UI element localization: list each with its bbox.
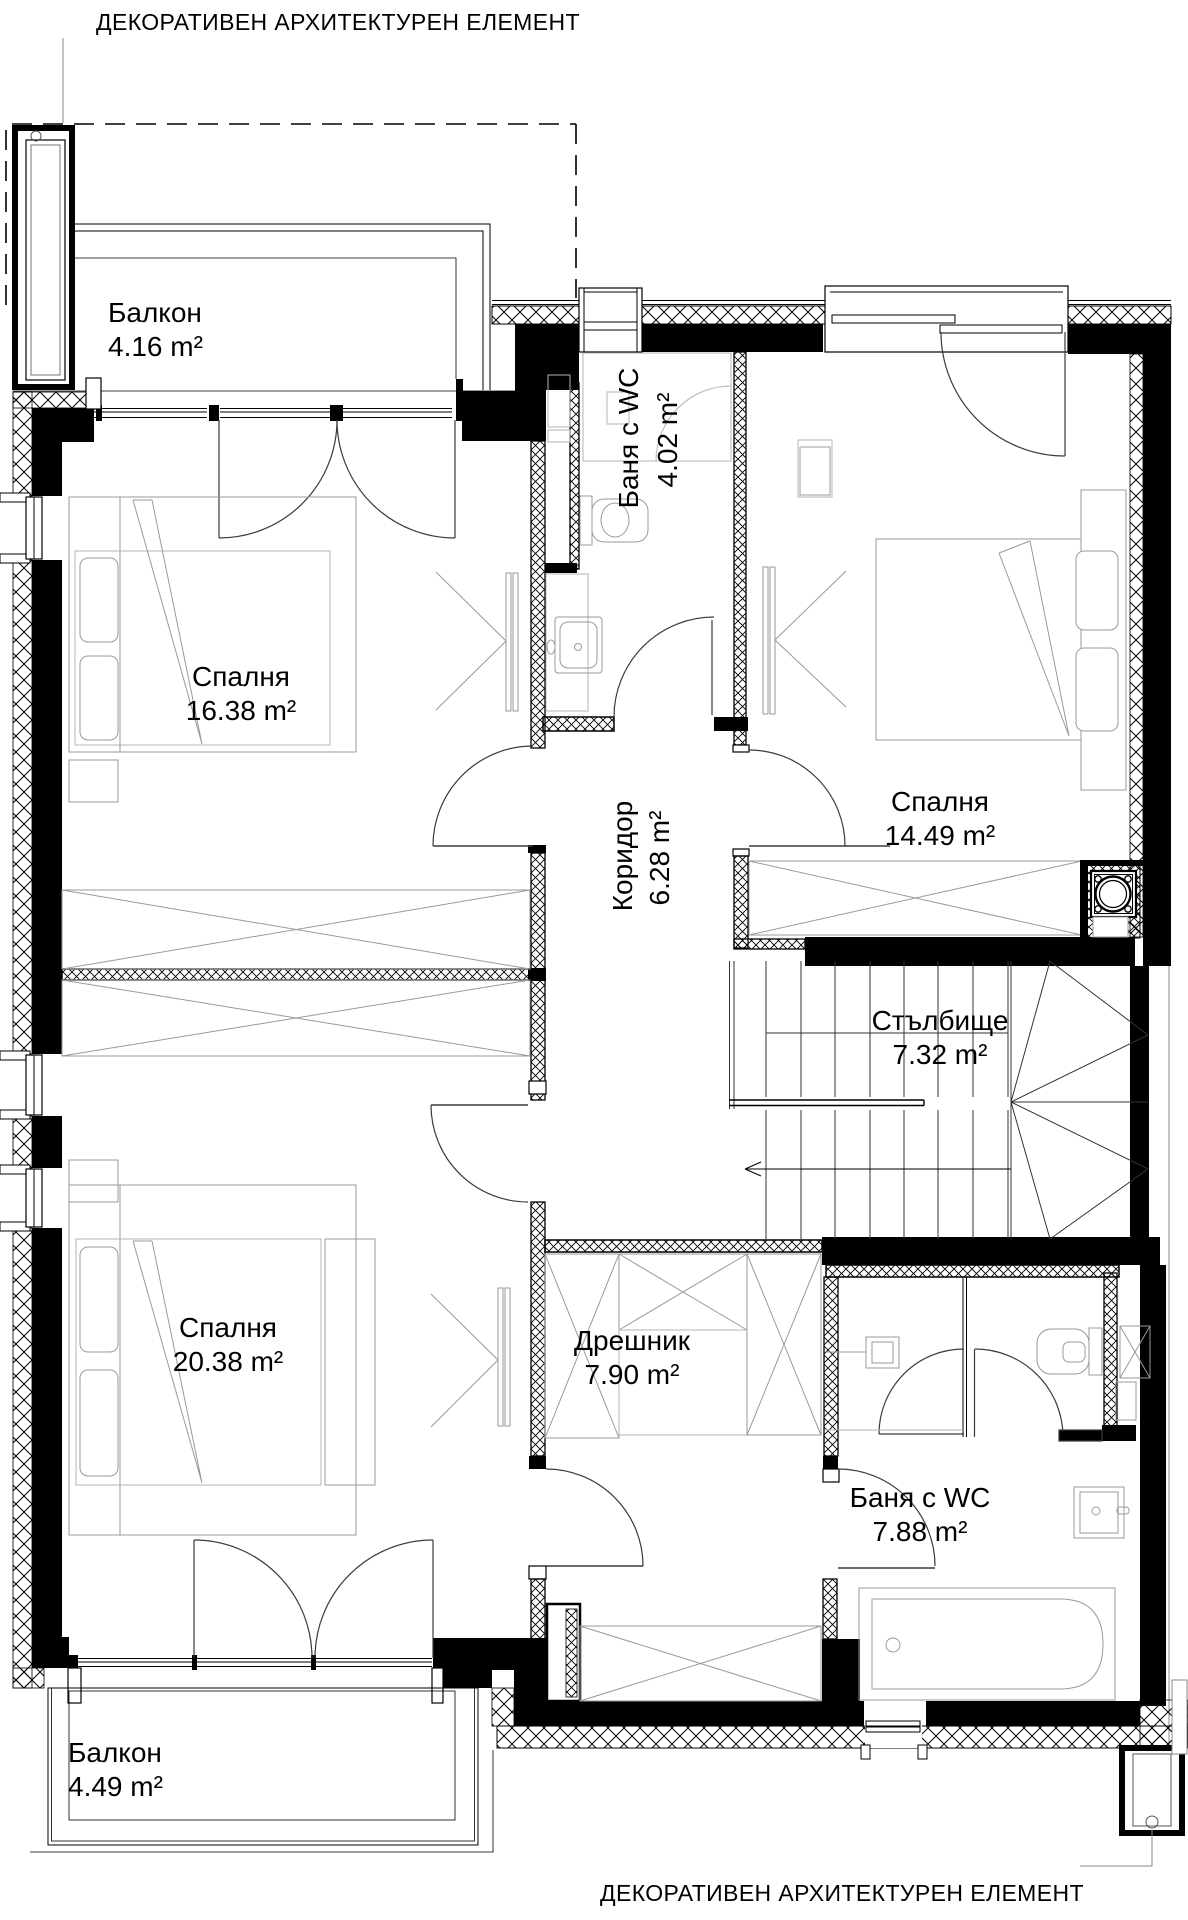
svg-text:Коридор: Коридор <box>607 801 638 912</box>
svg-text:Спалня: Спалня <box>179 1312 277 1343</box>
svg-text:Баня с WC: Баня с WC <box>850 1482 991 1513</box>
svg-text:Стълбище: Стълбище <box>872 1005 1009 1036</box>
svg-text:4.49 m²: 4.49 m² <box>68 1771 163 1802</box>
svg-text:Дрешник: Дрешник <box>574 1325 691 1356</box>
svg-text:7.88 m²: 7.88 m² <box>873 1516 968 1547</box>
svg-text:7.90 m²: 7.90 m² <box>585 1359 680 1390</box>
svg-text:7.32 m²: 7.32 m² <box>893 1039 988 1070</box>
svg-text:20.38 m²: 20.38 m² <box>173 1346 284 1377</box>
svg-text:ДЕКОРАТИВЕН АРХИТЕКТУРЕН ЕЛЕ: ДЕКОРАТИВЕН АРХИТЕКТУРЕН ЕЛЕМЕНТ <box>96 9 580 35</box>
svg-text:14.49 m²: 14.49 m² <box>885 820 996 851</box>
svg-text:16.38 m²: 16.38 m² <box>186 695 297 726</box>
svg-text:Балкон: Балкон <box>68 1737 162 1768</box>
svg-text:Спалня: Спалня <box>192 661 290 692</box>
svg-text:Балкон: Балкон <box>108 297 202 328</box>
svg-text:ДЕКОРАТИВЕН АРХИТЕКТУРЕН ЕЛЕ: ДЕКОРАТИВЕН АРХИТЕКТУРЕН ЕЛЕМЕНТ <box>600 1880 1084 1906</box>
svg-text:Баня с WC: Баня с WC <box>613 368 644 509</box>
svg-text:6.28 m²: 6.28 m² <box>644 811 675 906</box>
svg-text:4.02 m²: 4.02 m² <box>652 393 683 488</box>
svg-text:4.16 m²: 4.16 m² <box>108 331 203 362</box>
svg-text:Спалня: Спалня <box>891 786 989 817</box>
